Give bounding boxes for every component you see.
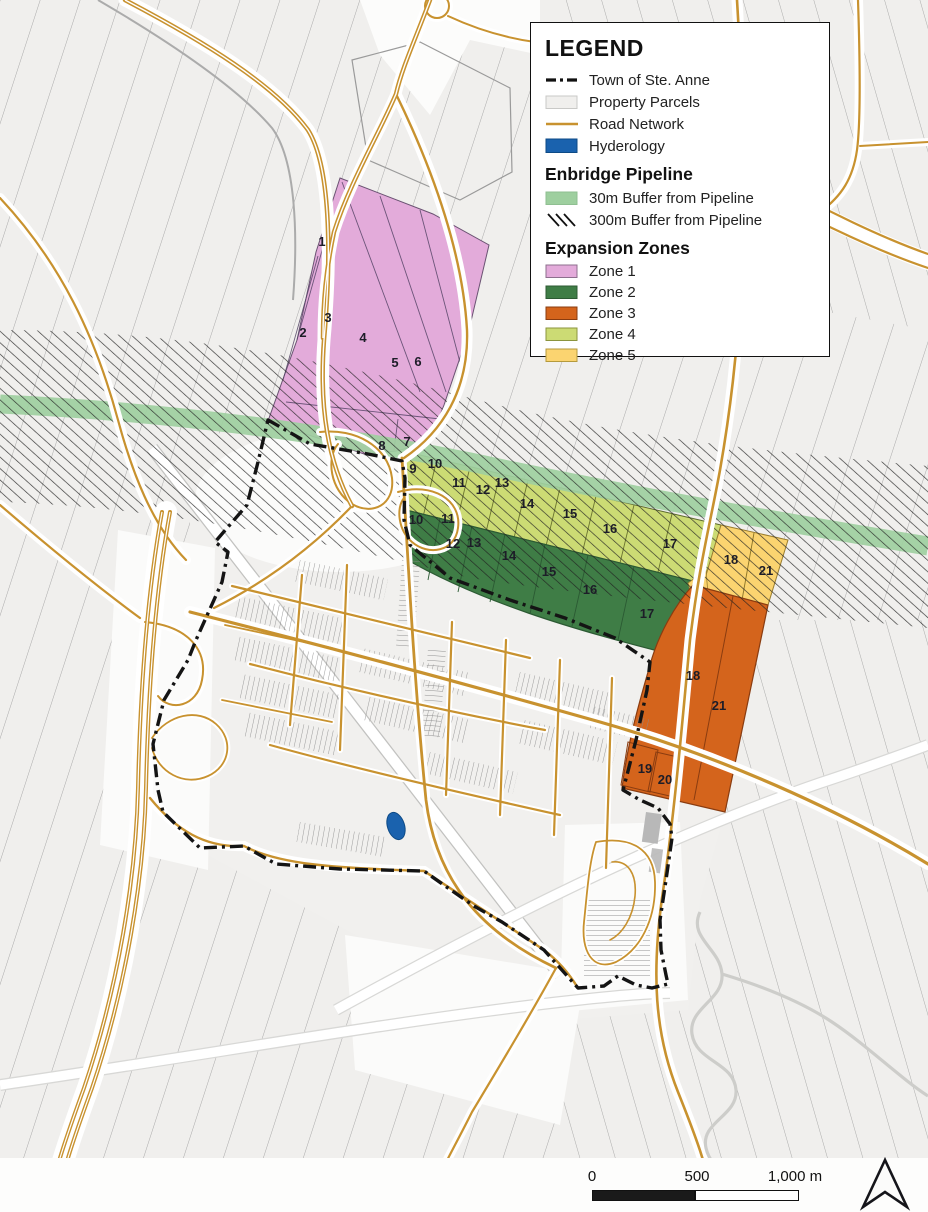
parcel-label: 1 bbox=[318, 234, 325, 249]
parcel-label: 18 bbox=[724, 552, 738, 567]
north-arrow-icon bbox=[852, 1152, 914, 1212]
legend-item-buffer-30m: 30m Buffer from Pipeline bbox=[545, 188, 815, 208]
parcel-label: 16 bbox=[583, 582, 597, 597]
parcel-label: 11 bbox=[441, 511, 455, 526]
legend-item-label: 300m Buffer from Pipeline bbox=[589, 212, 762, 229]
legend-item-label: Zone 3 bbox=[589, 305, 636, 322]
hydrology-swatch-icon bbox=[545, 138, 579, 154]
zone-1-swatch-icon bbox=[545, 264, 579, 279]
legend-item-zone-1: Zone 1 bbox=[545, 262, 815, 281]
legend-item-zone-5: Zone 5 bbox=[545, 346, 815, 365]
legend-item-label: Zone 2 bbox=[589, 284, 636, 301]
town-boundary-line-icon bbox=[545, 73, 579, 87]
map-margin bbox=[0, 1158, 928, 1212]
road-line-icon bbox=[545, 117, 579, 131]
zone-5-swatch-icon bbox=[545, 348, 579, 363]
parcel-label: 2 bbox=[299, 325, 306, 340]
parcel-label: 10 bbox=[409, 512, 423, 527]
legend-title: LEGEND bbox=[545, 35, 815, 62]
parcel-label: 5 bbox=[391, 355, 398, 370]
buffer-30m-swatch-icon bbox=[545, 191, 579, 206]
parcel-label: 9 bbox=[409, 461, 416, 476]
legend-panel: LEGEND Town of Ste. Anne Property Parcel… bbox=[530, 22, 830, 357]
parcel-label: 12 bbox=[476, 482, 490, 497]
parcel-label: 15 bbox=[563, 506, 577, 521]
parcel-label: 3 bbox=[324, 310, 331, 325]
parcel-label: 13 bbox=[495, 475, 509, 490]
legend-item-road-network: Road Network bbox=[545, 114, 815, 134]
legend-item-label: Zone 1 bbox=[589, 263, 636, 280]
parcel-label: 11 bbox=[452, 475, 466, 490]
legend-item-buffer-300m: 300m Buffer from Pipeline bbox=[545, 210, 815, 230]
parcel-label: 21 bbox=[712, 698, 726, 713]
parcel-label: 4 bbox=[359, 330, 367, 345]
buffer-300m-hatch-icon bbox=[545, 213, 579, 228]
legend-item-zone-3: Zone 3 bbox=[545, 304, 815, 323]
parcel-label: 13 bbox=[467, 535, 481, 550]
parcel-label: 8 bbox=[378, 438, 385, 453]
legend-item-label: Town of Ste. Anne bbox=[589, 72, 710, 89]
map-page: 1 2 3 4 5 6 7 8 9 10 11 12 13 14 15 16 1… bbox=[0, 0, 928, 1212]
legend-item-hydrology: Hyderology bbox=[545, 136, 815, 156]
legend-item-property-parcels: Property Parcels bbox=[545, 92, 815, 112]
parcel-label: 14 bbox=[502, 548, 517, 563]
parcel-label: 7 bbox=[403, 434, 410, 449]
legend-item-label: Zone 4 bbox=[589, 326, 636, 343]
legend-item-label: Property Parcels bbox=[589, 94, 700, 111]
zone-3-swatch-icon bbox=[545, 306, 579, 321]
legend-item-town-boundary: Town of Ste. Anne bbox=[545, 70, 815, 90]
legend-item-label: Hyderology bbox=[589, 138, 665, 155]
parcel-label: 17 bbox=[640, 606, 654, 621]
parcel-label: 17 bbox=[663, 536, 677, 551]
parcel-label: 14 bbox=[520, 496, 535, 511]
legend-item-label: Road Network bbox=[589, 116, 684, 133]
parcel-label: 21 bbox=[759, 563, 773, 578]
property-parcels-swatch-icon bbox=[545, 95, 579, 110]
parcel-label: 20 bbox=[658, 772, 672, 787]
legend-item-label: Zone 5 bbox=[589, 347, 636, 364]
legend-item-label: 30m Buffer from Pipeline bbox=[589, 190, 754, 207]
parcel-label: 6 bbox=[414, 354, 421, 369]
legend-item-zone-2: Zone 2 bbox=[545, 283, 815, 302]
parcel-label: 18 bbox=[686, 668, 700, 683]
legend-item-zone-4: Zone 4 bbox=[545, 325, 815, 344]
legend-section-pipeline: Enbridge Pipeline bbox=[545, 164, 815, 185]
zone-2-swatch-icon bbox=[545, 285, 579, 300]
parcel-label: 10 bbox=[428, 456, 442, 471]
parcel-label: 19 bbox=[638, 761, 652, 776]
parcel-label: 15 bbox=[542, 564, 556, 579]
legend-section-zones: Expansion Zones bbox=[545, 238, 815, 259]
parcel-label: 12 bbox=[446, 536, 460, 551]
parcel-label: 16 bbox=[603, 521, 617, 536]
zone-4-swatch-icon bbox=[545, 327, 579, 342]
